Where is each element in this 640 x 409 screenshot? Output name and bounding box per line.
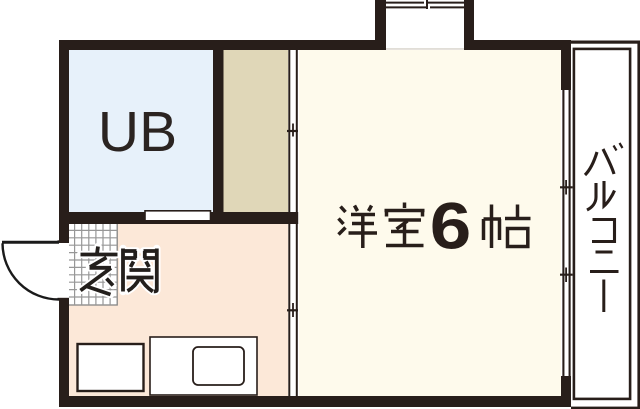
svg-text:6: 6 — [430, 189, 472, 263]
svg-text:UB: UB — [98, 100, 177, 164]
